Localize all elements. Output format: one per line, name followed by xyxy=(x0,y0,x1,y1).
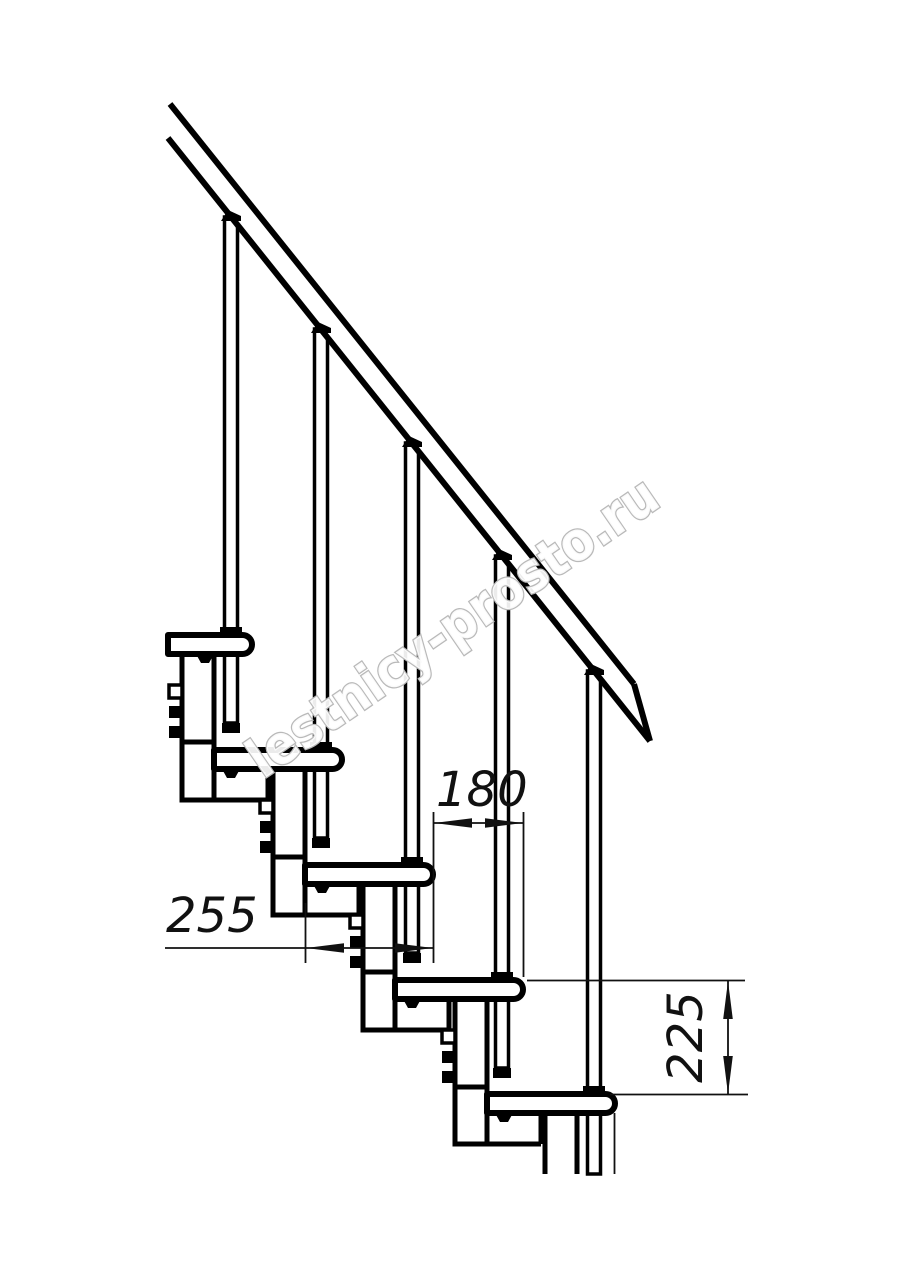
baluster-foot xyxy=(220,627,242,635)
support-module-4 xyxy=(442,999,541,1144)
arrowhead-up-icon xyxy=(723,981,733,1019)
handrail-top-edge xyxy=(170,104,634,684)
baluster-lower-cap xyxy=(312,838,330,848)
fastener-bolt xyxy=(350,956,363,968)
staircase-drawing-svg: 255 180 225 lestnicy-prosto.ru xyxy=(0,0,914,1280)
arrowhead-down-icon xyxy=(723,1056,733,1094)
dimension-label-255: 255 xyxy=(166,888,258,944)
fastener-tab xyxy=(169,685,182,698)
fastener-bolt xyxy=(260,841,273,853)
arrowhead-left-icon xyxy=(306,943,344,953)
tread-plate xyxy=(305,865,433,884)
support-module-2 xyxy=(260,769,359,915)
baluster-shaft xyxy=(225,217,238,635)
dimension-label-180: 180 xyxy=(436,762,528,818)
module-column xyxy=(273,769,305,915)
dimension-riser-height: 225 xyxy=(527,981,748,1095)
baluster-shaft xyxy=(588,671,601,1094)
baluster-foot xyxy=(583,1086,605,1094)
baluster-lower-shaft xyxy=(315,769,328,838)
baluster-lower-shaft xyxy=(225,654,238,723)
under-tread-bolt xyxy=(403,999,421,1008)
module-column xyxy=(455,999,487,1144)
fastener-tab xyxy=(442,1030,455,1043)
baluster-lower-shaft xyxy=(496,999,509,1068)
under-tread-bolt xyxy=(313,884,331,893)
under-tread-bolt xyxy=(222,769,240,778)
support-module-5 xyxy=(545,1113,577,1174)
staircase-technical-drawing: 255 180 225 lestnicy-prosto.ru xyxy=(0,0,914,1280)
dimension-step-going: 180 xyxy=(434,762,528,977)
fastener-bolt xyxy=(260,821,273,833)
baluster-foot xyxy=(401,857,423,865)
fastener-tab xyxy=(350,915,363,928)
module-column xyxy=(182,654,214,800)
baluster-lower-shaft xyxy=(588,1113,601,1174)
baluster-lower-cap xyxy=(403,953,421,963)
tread-plate xyxy=(168,635,252,654)
fastener-bolt xyxy=(169,726,182,738)
fastener-bolt xyxy=(442,1071,455,1083)
module-column xyxy=(363,884,395,1030)
watermark: lestnicy-prosto.ru xyxy=(235,463,670,790)
baluster-lower-cap xyxy=(493,1068,511,1078)
arrowhead-left-icon xyxy=(434,818,472,828)
fastener-bolt xyxy=(350,936,363,948)
tread-plate xyxy=(487,1094,615,1113)
baluster-lower-shaft xyxy=(406,884,419,953)
tread-plate xyxy=(395,980,523,999)
fastener-bolt xyxy=(169,706,182,718)
fastener-bolt xyxy=(442,1051,455,1063)
under-tread-bolt xyxy=(495,1113,513,1122)
baluster-foot xyxy=(491,972,513,980)
baluster-lower-cap xyxy=(222,723,240,733)
dimension-label-225: 225 xyxy=(658,991,714,1083)
fastener-tab xyxy=(260,800,273,813)
